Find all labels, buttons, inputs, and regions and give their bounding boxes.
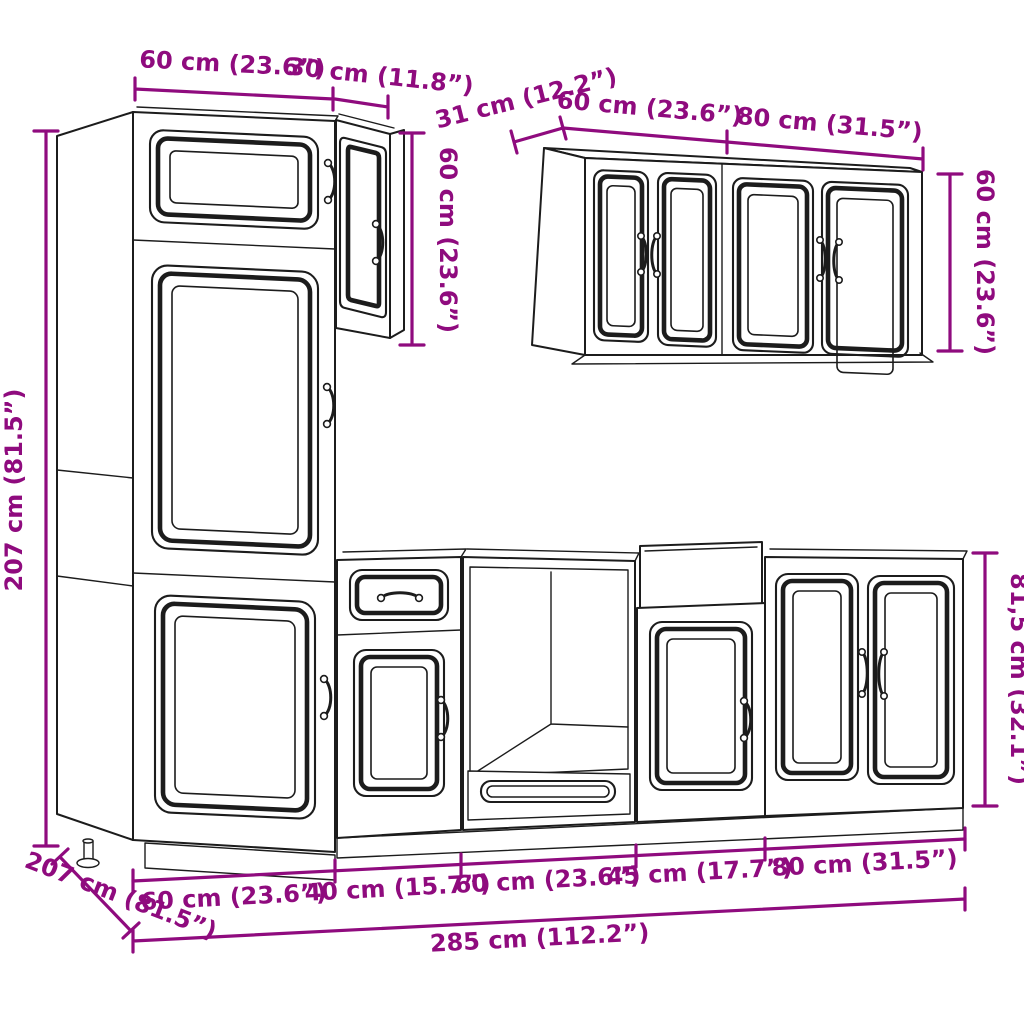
wall-30-side-panel — [390, 130, 404, 338]
base-40-top-edge — [343, 549, 466, 557]
dim-wall-60-width: 60 cm (23.6”) — [556, 86, 744, 153]
base-60-drawer — [468, 771, 630, 820]
dim-wall-60-width-label: 60 cm (23.6”) — [556, 86, 744, 130]
dim-base-height-label: 81,5 cm (32.1”) — [1005, 573, 1024, 785]
diagram-canvas: 60 cm (23.6”) 30 cm (11.8”) 60 cm (23.6”… — [0, 0, 1024, 1024]
dim-wall-small-width-label: 30 cm (11.8”) — [287, 52, 475, 99]
wall-cabinet-group — [532, 148, 933, 375]
base-cabinet-40 — [337, 549, 466, 838]
dim-wall-small-height-label: 60 cm (23.6”) — [434, 147, 462, 333]
dim-wall-height-label: 60 cm (23.6”) — [971, 169, 999, 355]
dim-wall-small-height: 60 cm (23.6”) — [400, 133, 462, 345]
tall-cabinet-foot — [77, 839, 99, 868]
tall-cabinet-side-panel — [57, 112, 133, 840]
dim-base-45-label: 45 cm (17.7”) — [606, 853, 793, 891]
dim-wall-height: 60 cm (23.6”) — [938, 169, 999, 355]
base-cabinet-60-oven — [463, 549, 639, 830]
dim-wall-80-width-label: 80 cm (31.5”) — [736, 102, 924, 146]
cabinet-dimension-diagram: 60 cm (23.6”) 30 cm (11.8”) 60 cm (23.6”… — [0, 0, 1024, 1024]
wall-cabinet-30 — [336, 114, 404, 338]
dim-base-80-label: 80 cm (31.5”) — [771, 844, 958, 882]
dim-tall-height-label: 207 cm (81.5”) — [0, 389, 28, 592]
wall-group-side-panel — [532, 148, 585, 355]
dim-base-height: 81,5 cm (32.1”) — [973, 553, 1024, 806]
dim-tall-height: 207 cm (81.5”) — [0, 131, 58, 846]
dim-base-60a-label: 60 cm (23.6”) — [140, 878, 327, 916]
base-45-back-panel — [640, 542, 762, 610]
base-cabinet-80 — [765, 549, 967, 816]
base-cabinet-row — [337, 542, 967, 858]
tall-cabinet — [57, 107, 338, 880]
base-cabinet-45 — [637, 542, 765, 822]
